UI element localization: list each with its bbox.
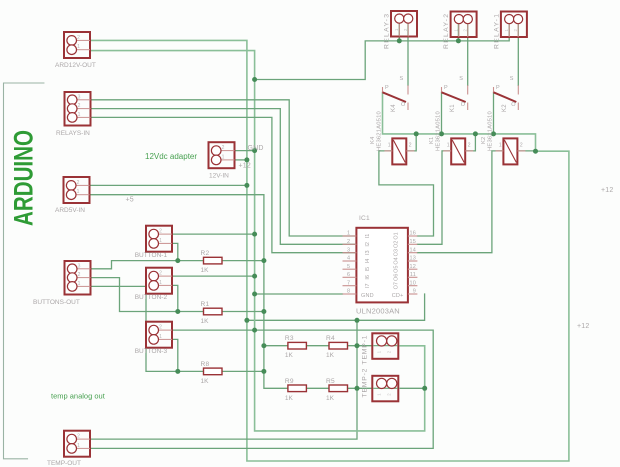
svg-text:O: O [401,102,406,108]
svg-text:I5: I5 [365,267,371,272]
svg-text:11: 11 [410,272,416,278]
svg-text:S: S [510,76,514,82]
svg-text:1K: 1K [201,318,210,325]
svg-text:15: 15 [409,239,416,245]
svg-text:O: O [461,102,466,108]
svg-text:BUTTON-1: BUTTON-1 [135,252,168,259]
svg-text:10: 10 [409,280,416,286]
svg-text:O: O [511,102,516,108]
svg-text:2: 2 [468,143,471,149]
svg-text:8: 8 [347,289,350,295]
svg-text:1: 1 [78,281,81,287]
svg-text:4: 4 [347,256,350,262]
svg-text:+5: +5 [126,197,134,204]
svg-text:K1: K1 [450,104,456,112]
svg-text:1: 1 [159,238,162,244]
svg-text:1: 1 [78,112,81,118]
svg-text:2: 2 [409,143,412,149]
svg-text:R4: R4 [326,335,335,342]
svg-text:I3: I3 [365,250,371,255]
svg-text:3: 3 [78,94,81,100]
svg-text:7: 7 [347,280,350,286]
svg-text:R1: R1 [201,301,210,308]
svg-text:RELAYS-IN: RELAYS-IN [56,130,90,137]
svg-text:3: 3 [78,263,81,269]
svg-text:RELAY-2: RELAY-2 [443,13,450,49]
svg-text:R8: R8 [201,361,210,368]
svg-text:BUTTONS-OUT: BUTTONS-OUT [33,299,80,306]
svg-text:TEMP-1: TEMP-1 [362,335,369,365]
svg-text:2: 2 [347,239,350,245]
svg-text:IC1: IC1 [359,215,370,222]
svg-text:2: 2 [77,35,80,41]
svg-text:O5: O5 [394,266,400,273]
svg-text:P: P [496,85,500,91]
svg-text:1: 1 [159,334,162,340]
svg-text:+12: +12 [239,163,251,170]
svg-text:1K: 1K [201,378,210,385]
svg-text:ARDUINO: ARDUINO [9,130,39,226]
svg-text:5: 5 [347,264,350,270]
svg-text:12: 12 [409,264,416,270]
svg-text:O1: O1 [394,232,400,239]
svg-text:S: S [400,76,404,82]
svg-text:2: 2 [159,271,162,277]
svg-text:2: 2 [78,272,81,278]
svg-text:1: 1 [77,443,80,449]
svg-text:O4: O4 [394,257,400,264]
svg-text:O7: O7 [394,282,400,289]
svg-text:12V-IN: 12V-IN [209,173,229,180]
svg-text:1: 1 [77,189,80,195]
svg-text:1K: 1K [326,395,335,402]
svg-text:TEMP-2: TEMP-2 [362,368,369,398]
svg-text:P: P [385,85,389,91]
svg-text:P: P [444,85,448,91]
svg-text:ARD5V-IN: ARD5V-IN [55,207,85,214]
svg-text:I4: I4 [365,259,371,264]
svg-text:GND: GND [361,293,374,299]
svg-text:BUTTON-2: BUTTON-2 [135,294,168,301]
svg-text:2: 2 [77,180,80,186]
svg-text:K4: K4 [370,136,376,144]
svg-text:HE3621A0510: HE3621A0510 [488,111,494,151]
svg-text:I6: I6 [365,275,371,280]
svg-text:1K: 1K [201,267,210,274]
svg-text:temp analog out: temp analog out [51,392,106,401]
svg-text:I2: I2 [365,242,371,247]
svg-text:CD+: CD+ [392,293,404,299]
svg-text:ARD12V-OUT: ARD12V-OUT [55,62,96,69]
svg-text:O2: O2 [394,241,400,248]
svg-text:2: 2 [159,229,162,235]
svg-text:2: 2 [78,103,81,109]
svg-text:+12: +12 [601,187,613,194]
svg-text:1: 1 [388,143,391,149]
svg-text:BUTTON-3: BUTTON-3 [135,348,168,355]
svg-text:RELAY-3: RELAY-3 [384,13,391,49]
svg-text:2: 2 [222,145,225,151]
svg-text:K1: K1 [429,137,435,145]
svg-text:16: 16 [409,231,416,237]
svg-text:2: 2 [159,325,162,331]
svg-text:TEMP-OUT: TEMP-OUT [47,460,81,467]
svg-text:2: 2 [520,143,523,149]
svg-text:+12: +12 [577,323,589,330]
svg-text:2: 2 [77,434,80,440]
svg-text:12Vdc adapter: 12Vdc adapter [145,152,197,161]
svg-text:1: 1 [77,44,80,50]
svg-text:1: 1 [447,143,450,149]
svg-text:14: 14 [409,247,416,253]
svg-text:6: 6 [347,272,350,278]
svg-text:R2: R2 [201,250,210,257]
svg-text:O6: O6 [394,274,400,281]
svg-text:K2: K2 [502,104,508,112]
svg-text:I7: I7 [365,283,371,288]
svg-text:9: 9 [413,289,416,295]
svg-text:I1: I1 [365,234,371,239]
svg-text:HE3621A0510: HE3621A0510 [435,111,441,151]
svg-text:HE3621A0510: HE3621A0510 [377,111,383,151]
svg-text:K4: K4 [391,104,397,112]
svg-text:1K: 1K [285,352,294,359]
svg-text:13: 13 [409,256,416,262]
svg-text:R3: R3 [285,335,294,342]
svg-text:1K: 1K [326,352,335,359]
svg-text:R5: R5 [326,378,335,385]
svg-text:1: 1 [347,231,350,237]
svg-text:RELAY-1: RELAY-1 [494,13,501,49]
svg-text:1K: 1K [285,395,294,402]
svg-text:O3: O3 [394,249,400,256]
svg-text:1: 1 [222,154,225,160]
svg-text:S: S [459,76,463,82]
svg-text:R9: R9 [285,378,294,385]
svg-text:1: 1 [499,143,502,149]
svg-text:K2: K2 [481,137,487,145]
svg-text:1: 1 [159,280,162,286]
svg-text:ULN2003AN: ULN2003AN [356,307,400,316]
svg-text:3: 3 [347,247,350,253]
svg-text:GND: GND [248,145,264,152]
